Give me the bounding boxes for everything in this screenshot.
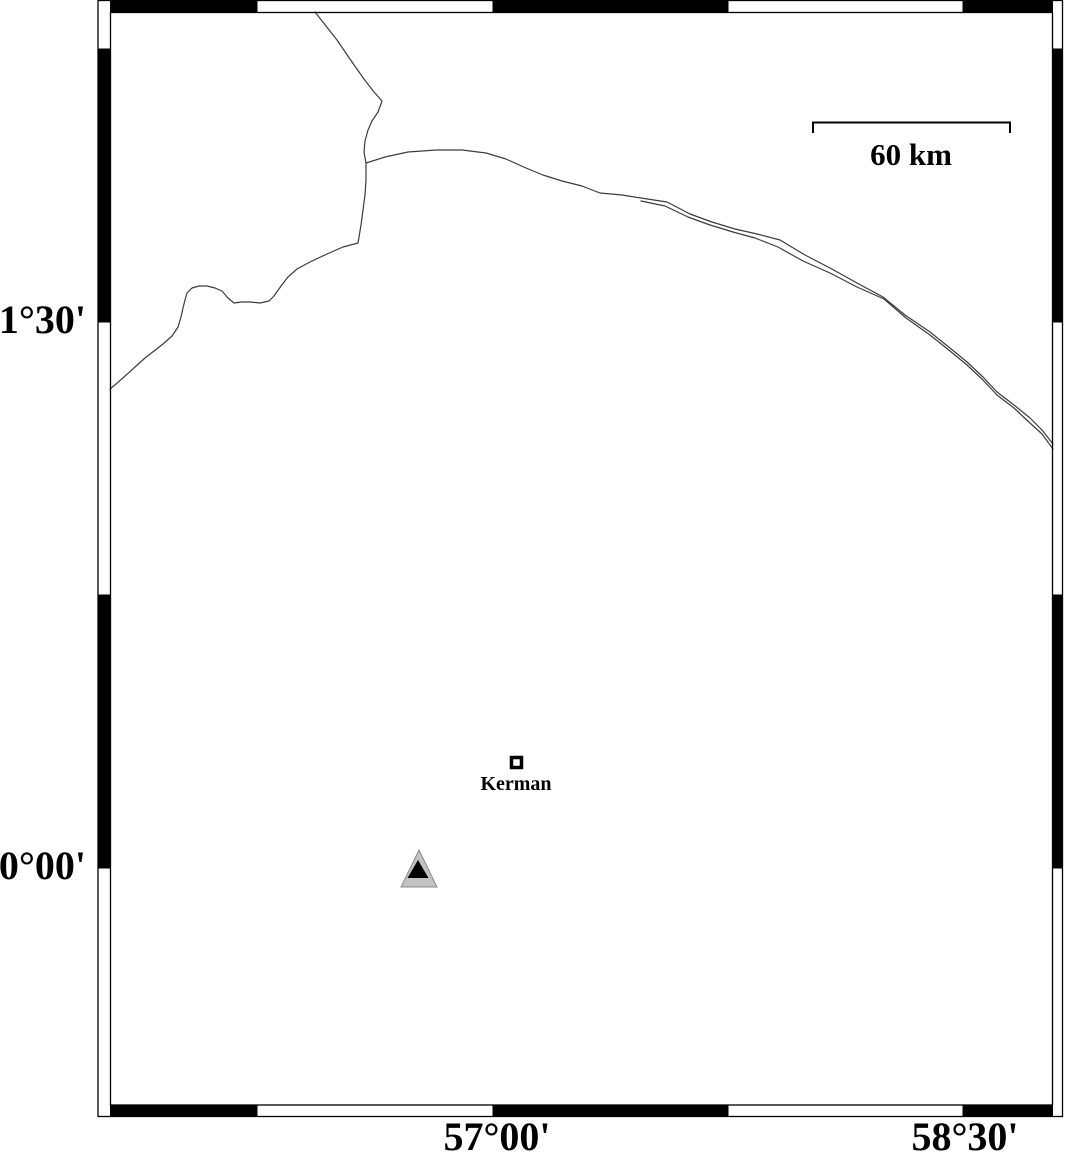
scale-bar-line <box>813 123 1010 134</box>
city-marker-kerman: Kerman <box>480 758 551 796</box>
latitude-labels: 31°30' 30°00' <box>0 297 86 888</box>
station-marker <box>401 850 437 887</box>
road-line-east-lower <box>641 201 1053 449</box>
lat-label-30-00: 30°00' <box>0 843 86 888</box>
longitude-labels: 57°00' 58°30' <box>443 1114 1018 1155</box>
road-lines <box>110 12 1053 449</box>
road-line-east-upper <box>366 150 1053 444</box>
city-square-icon <box>512 758 522 768</box>
frame-segment <box>1053 49 1063 322</box>
frame-segment <box>1053 595 1063 868</box>
frame-segment <box>110 1 257 12</box>
frame-inner-rect <box>111 13 1053 1106</box>
road-line-north <box>110 12 382 389</box>
map-figure: 60 km Kerman 31°30' 30°00' 57°00' 58°30' <box>0 0 1066 1155</box>
scale-bar-label: 60 km <box>870 137 952 172</box>
frame-segment <box>110 1106 257 1117</box>
map-canvas: 60 km Kerman 31°30' 30°00' 57°00' 58°30' <box>0 0 1066 1155</box>
frame-segment <box>98 595 110 868</box>
lon-label-58-30: 58°30' <box>911 1114 1018 1155</box>
lon-label-57-00: 57°00' <box>443 1114 550 1155</box>
city-label: Kerman <box>480 773 551 795</box>
frame-segment <box>963 1 1053 12</box>
scale-bar: 60 km <box>813 123 1010 173</box>
lat-label-31-30: 31°30' <box>0 297 86 342</box>
frame-segment <box>98 49 110 322</box>
frame-segment <box>493 1 728 12</box>
